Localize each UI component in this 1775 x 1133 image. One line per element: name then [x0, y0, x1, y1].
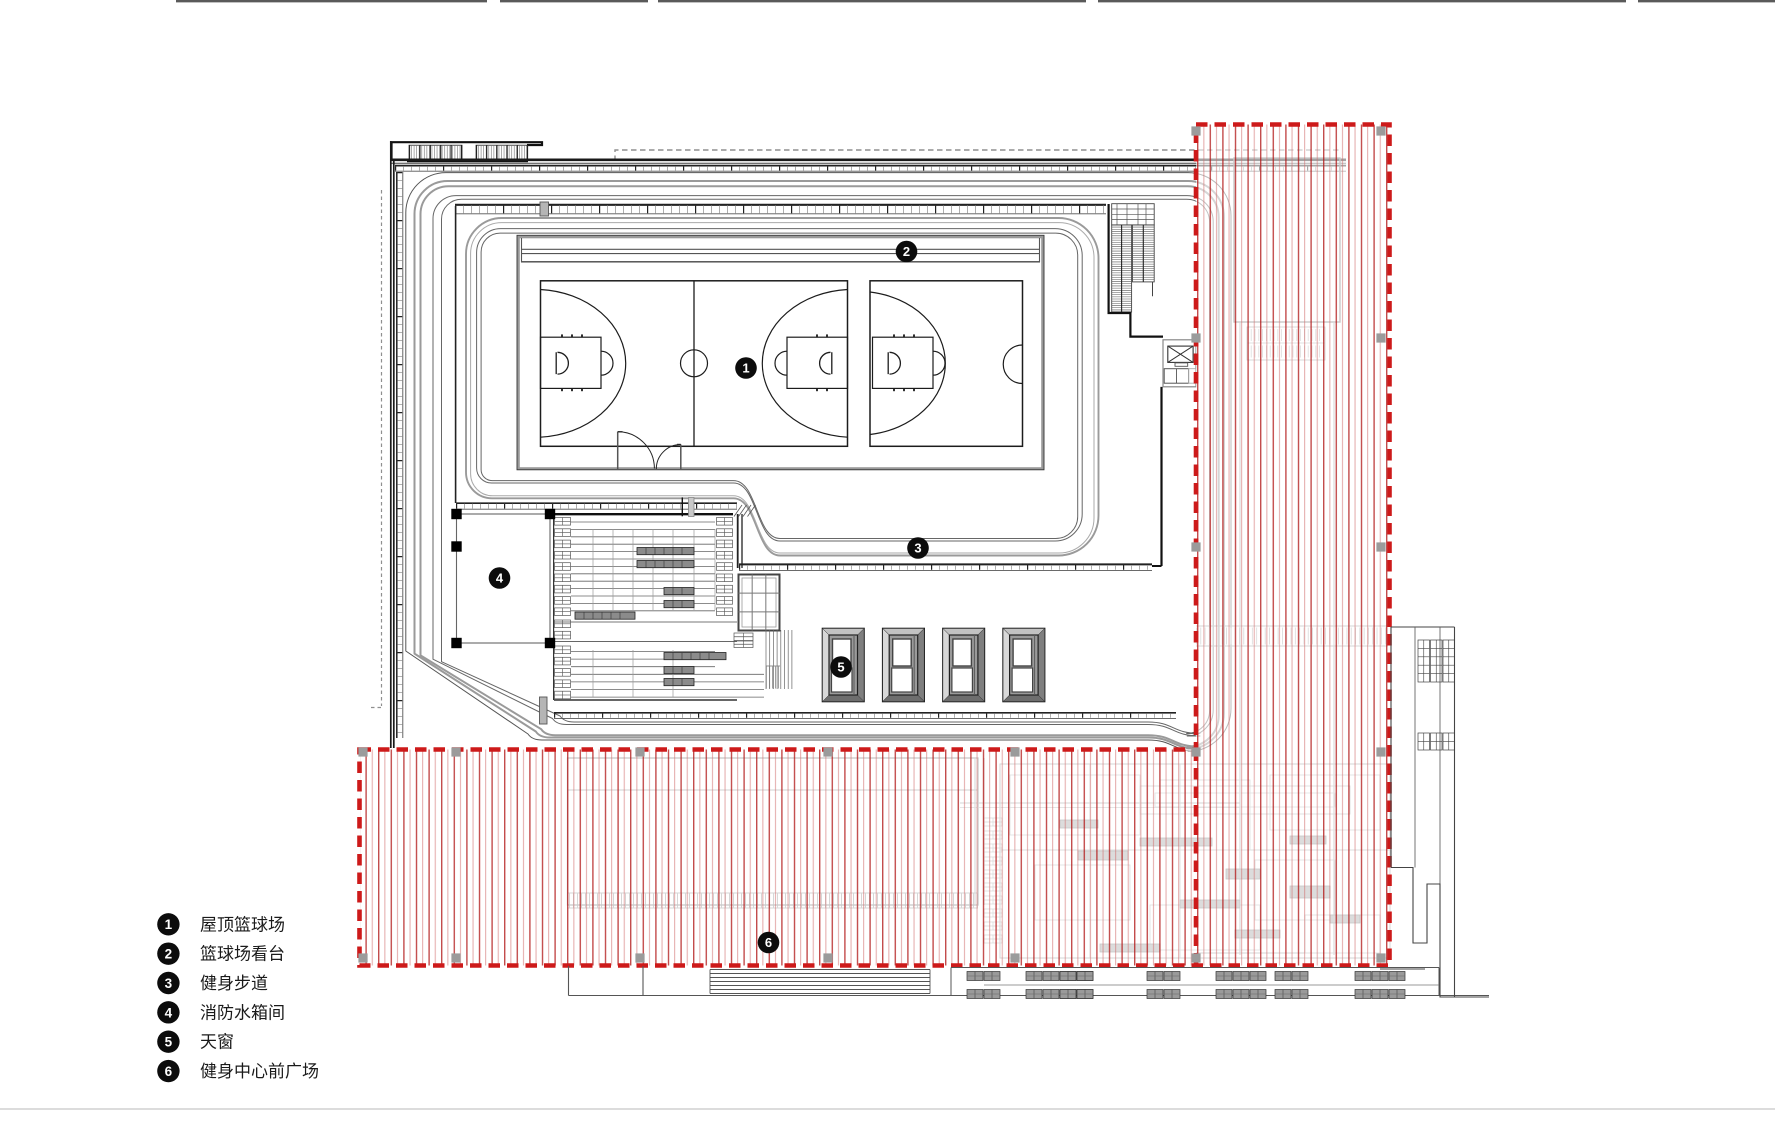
svg-text:6: 6	[765, 935, 772, 950]
svg-text:3: 3	[165, 976, 173, 991]
svg-text:1: 1	[165, 917, 173, 932]
svg-text:6: 6	[165, 1064, 173, 1079]
svg-text:天窗: 天窗	[200, 1033, 234, 1052]
svg-text:2: 2	[903, 244, 910, 259]
svg-text:1: 1	[742, 361, 749, 376]
svg-text:健身步道: 健身步道	[200, 974, 268, 993]
svg-text:消防水箱间: 消防水箱间	[200, 1003, 285, 1022]
svg-text:5: 5	[165, 1035, 173, 1050]
svg-text:2: 2	[165, 947, 173, 962]
svg-text:屋顶篮球场: 屋顶篮球场	[200, 915, 285, 934]
svg-text:健身中心前广场: 健身中心前广场	[200, 1062, 319, 1081]
svg-text:5: 5	[837, 660, 844, 675]
svg-text:4: 4	[165, 1005, 173, 1020]
svg-text:4: 4	[496, 571, 504, 586]
svg-text:篮球场看台: 篮球场看台	[200, 945, 285, 964]
svg-text:3: 3	[914, 541, 921, 556]
